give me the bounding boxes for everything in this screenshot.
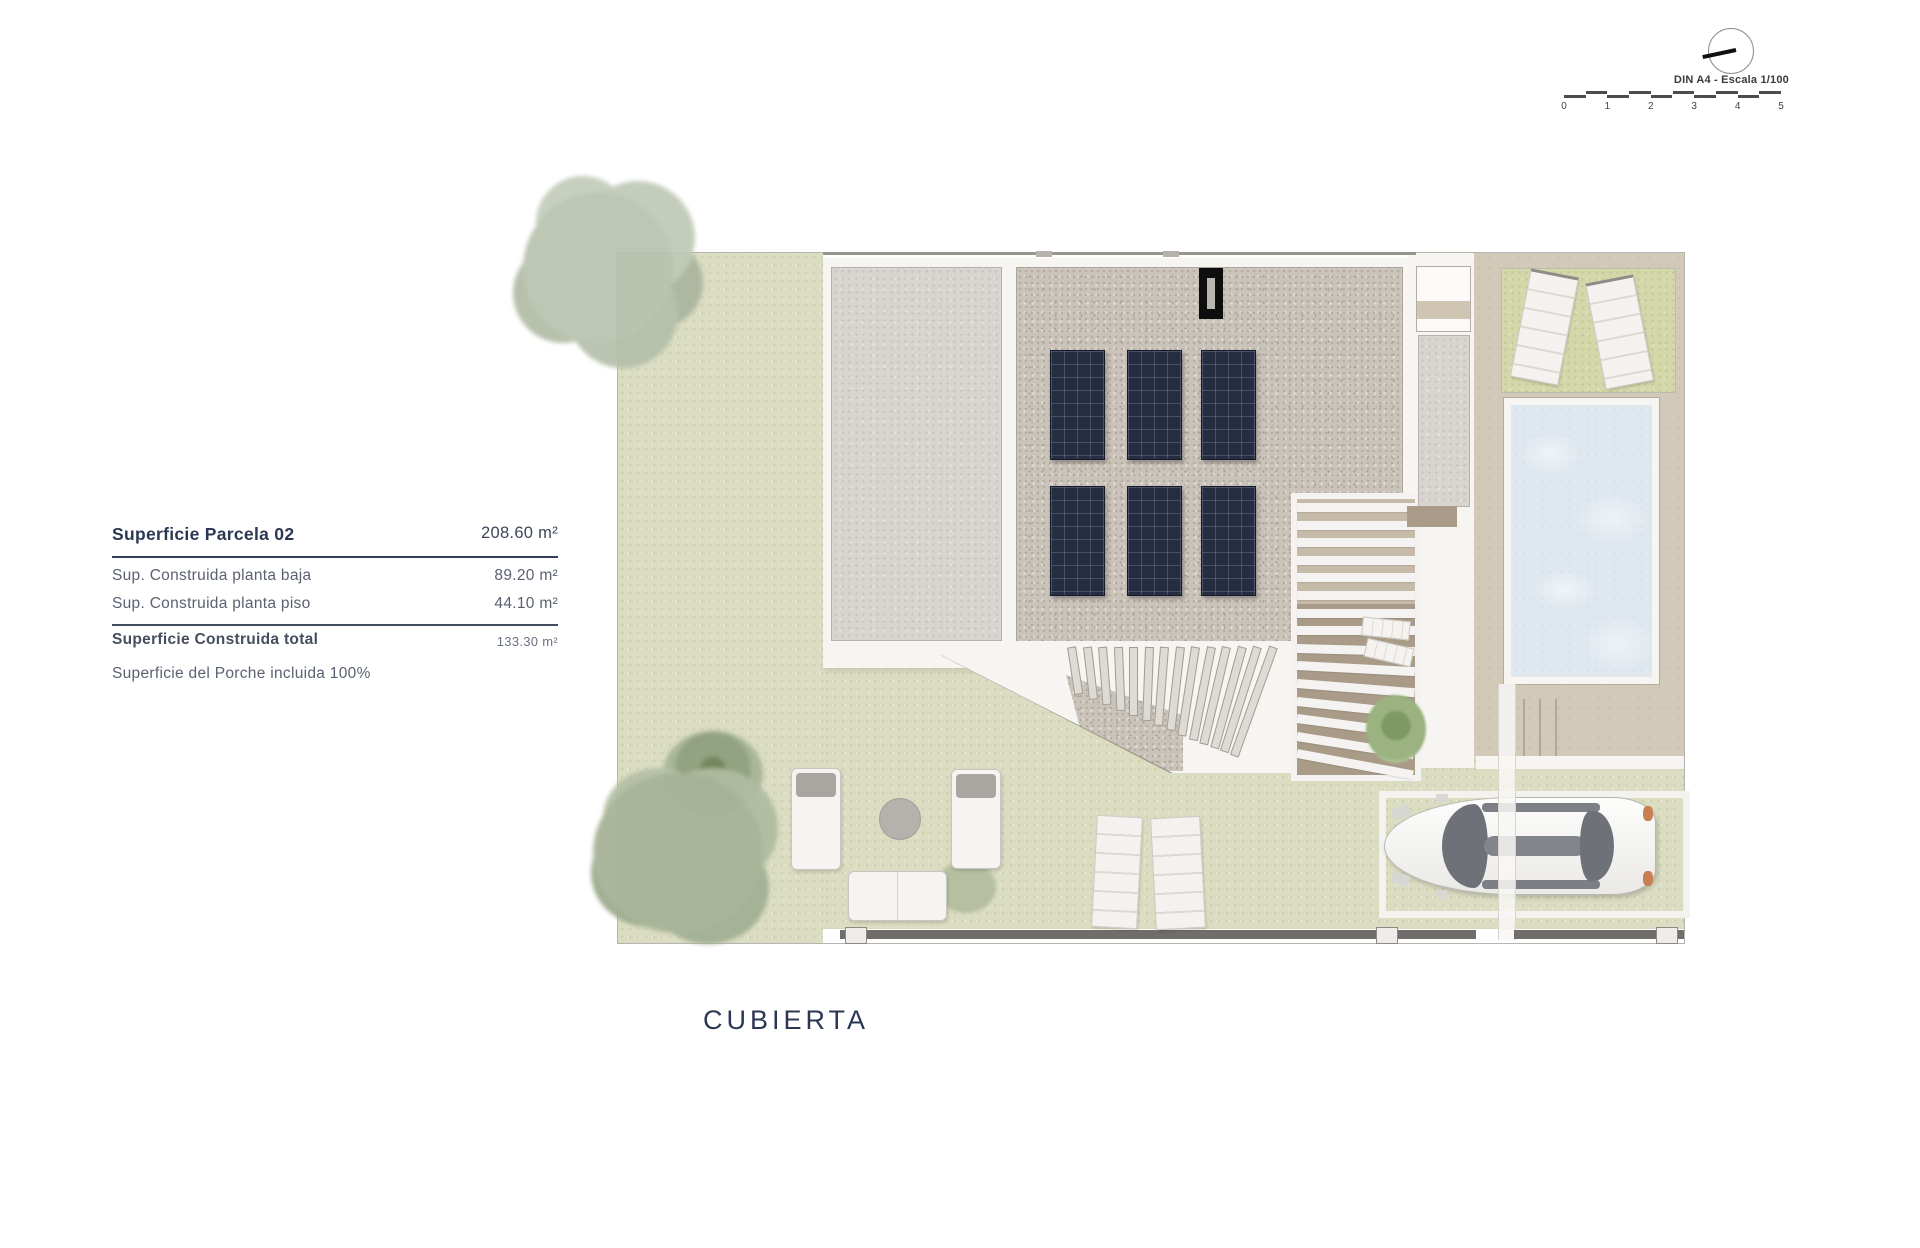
scale-bar: [1564, 91, 1781, 99]
armchair-back: [956, 774, 996, 798]
area-row: Sup. Construida planta piso 44.10 m²: [112, 595, 558, 613]
area-row: Sup. Construida planta baja 89.20 m²: [112, 567, 558, 585]
solar-panel: [1050, 350, 1105, 460]
terrace-room: [1416, 266, 1471, 332]
roof-joint: [1036, 251, 1052, 257]
scale-ticks: 0 1 2 3 4 5: [1556, 101, 1796, 115]
car-mirror: [1436, 794, 1448, 802]
plan-title: CUBIERTA: [703, 1005, 869, 1036]
sofa: [848, 871, 947, 921]
armchair: [951, 769, 1001, 869]
chimney-flue: [1207, 278, 1215, 309]
row-label: Sup. Construida planta baja: [112, 567, 311, 585]
car-taillight: [1643, 871, 1653, 886]
row-value: 44.10 m²: [494, 595, 558, 613]
row-label: Sup. Construida planta piso: [112, 595, 311, 613]
roof-top-edge: [823, 252, 1416, 255]
fence-post: [1656, 927, 1678, 944]
scale-tick: 0: [1561, 101, 1567, 112]
pool-step: [1555, 699, 1557, 756]
area-title-label: Superficie Parcela 02: [112, 524, 294, 545]
pool-step: [1523, 699, 1525, 756]
bush: [1366, 695, 1426, 763]
scale-tick: 3: [1691, 101, 1697, 112]
porch-note: Superficie del Porche incluida 100%: [112, 665, 371, 683]
scale-label: DIN A4 - Escala 1/100: [1674, 74, 1789, 86]
solar-panel: [1050, 486, 1105, 596]
car-taillight: [1643, 806, 1653, 821]
area-total-row: Superficie Construida total 133.30 m²: [112, 631, 558, 649]
carport-beam: [1498, 684, 1516, 940]
fence-post: [1376, 927, 1398, 944]
tree: [523, 193, 673, 343]
scale-indicator: DIN A4 - Escala 1/100 0 1 2 3 4 5: [1556, 28, 1796, 123]
sun-lounger: [1150, 816, 1206, 930]
roof-gravel-light: [831, 267, 1002, 641]
row-value: 89.20 m²: [494, 567, 558, 585]
total-label: Superficie Construida total: [112, 631, 318, 649]
scale-tick: 2: [1648, 101, 1654, 112]
fence-post: [845, 927, 867, 944]
solar-panel: [1127, 350, 1182, 460]
terrace-band: [1417, 301, 1470, 319]
armchair: [791, 768, 841, 870]
scale-tick: 5: [1778, 101, 1784, 112]
table-rule: [112, 556, 558, 558]
sun-lounger: [1091, 815, 1143, 929]
parked-car: [1384, 797, 1656, 895]
solar-panel: [1201, 486, 1256, 596]
chimney: [1199, 268, 1223, 319]
area-note-row: Superficie del Porche incluida 100%: [112, 665, 558, 683]
courtyard-gravel: [1418, 335, 1470, 507]
courtyard-deck: [1407, 506, 1457, 527]
scale-tick: 4: [1735, 101, 1741, 112]
solar-panel: [1201, 350, 1256, 460]
site-plan: [617, 252, 1685, 944]
roof-joint: [1163, 251, 1179, 257]
area-table-title-row: Superficie Parcela 02 208.60 m²: [112, 524, 558, 545]
car-mirror: [1436, 890, 1448, 898]
table-rule: [112, 624, 558, 626]
armchair-back: [796, 773, 836, 797]
total-value: 133.30 m²: [497, 631, 558, 649]
scale-tick: 1: [1605, 101, 1611, 112]
coffee-table: [879, 798, 921, 840]
plan-sheet: { "scale_indicator": { "label": "DIN A4 …: [0, 0, 1920, 1248]
solar-panel: [1127, 486, 1182, 596]
area-title-value: 208.60 m²: [481, 524, 558, 545]
swimming-pool: [1504, 398, 1659, 684]
tree: [593, 773, 763, 933]
pool-step: [1539, 699, 1541, 756]
